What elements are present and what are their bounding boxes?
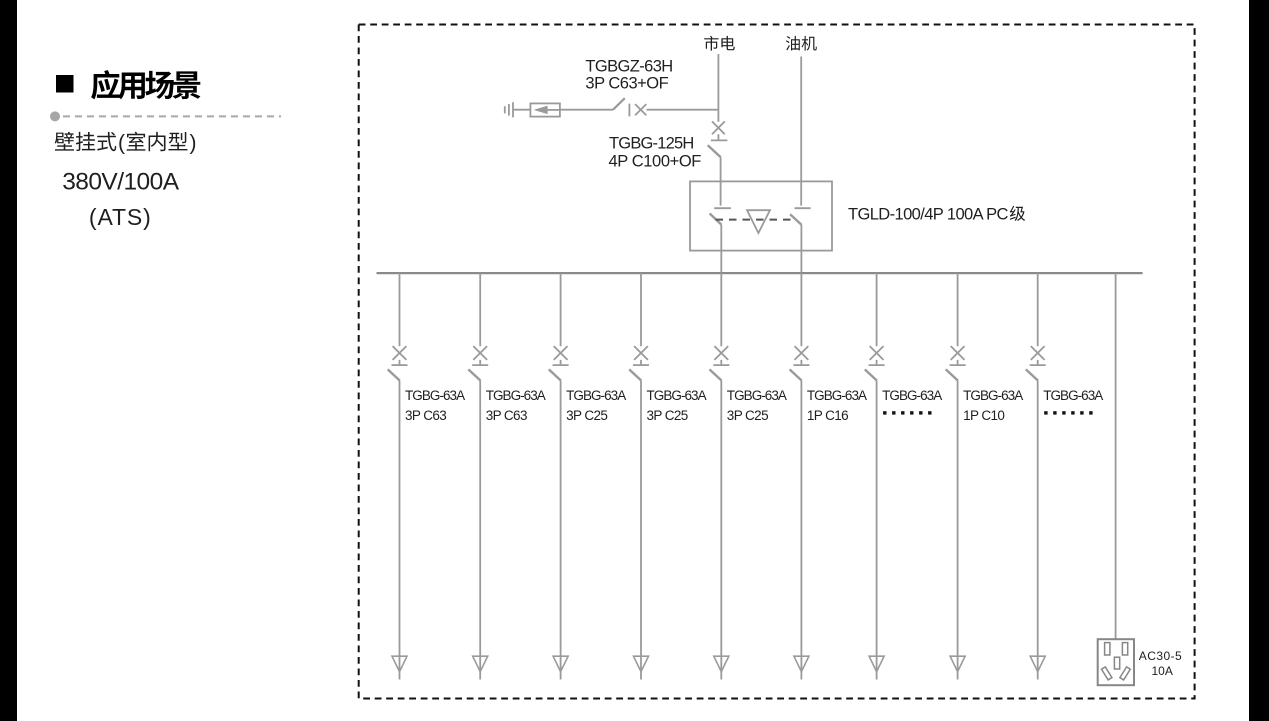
svg-text:3P C63: 3P C63 <box>486 408 527 423</box>
svg-text:3P C25: 3P C25 <box>647 408 688 423</box>
svg-text:10A: 10A <box>1152 664 1173 678</box>
svg-text:(: ( <box>118 132 125 155</box>
svg-text:AC30-5: AC30-5 <box>1139 649 1182 663</box>
svg-text:3P C63+OF: 3P C63+OF <box>585 74 668 92</box>
svg-text:TGBG-63A: TGBG-63A <box>807 388 867 403</box>
svg-text:4P C100+OF: 4P C100+OF <box>609 153 702 171</box>
svg-text:3P C25: 3P C25 <box>727 408 768 423</box>
svg-text:TGBG-63A: TGBG-63A <box>963 388 1023 403</box>
svg-text:): ) <box>190 132 197 155</box>
svg-text:TGBG-63A: TGBG-63A <box>727 388 787 403</box>
svg-text:1P C16: 1P C16 <box>807 408 848 423</box>
svg-text:TGBG-63A: TGBG-63A <box>405 388 465 403</box>
svg-text:3P C63: 3P C63 <box>405 408 446 423</box>
svg-text:TGBG-125H: TGBG-125H <box>609 135 694 153</box>
svg-text:TGBGZ-63H: TGBGZ-63H <box>585 58 672 76</box>
svg-text:TGBG-63A: TGBG-63A <box>566 388 626 403</box>
svg-text:TGBG-63A: TGBG-63A <box>647 388 707 403</box>
svg-text:1P C10: 1P C10 <box>963 408 1004 423</box>
svg-text:TGBG-63A: TGBG-63A <box>882 388 942 403</box>
svg-text:3P C25: 3P C25 <box>566 408 607 423</box>
svg-text:TGBG-63A: TGBG-63A <box>486 388 546 403</box>
svg-text:TGLD-100/4P 100A PC: TGLD-100/4P 100A PC <box>848 206 1008 224</box>
svg-text:380V/100A: 380V/100A <box>62 169 180 196</box>
svg-text:(ATS): (ATS) <box>89 204 152 230</box>
svg-text:TGBG-63A: TGBG-63A <box>1043 388 1103 403</box>
